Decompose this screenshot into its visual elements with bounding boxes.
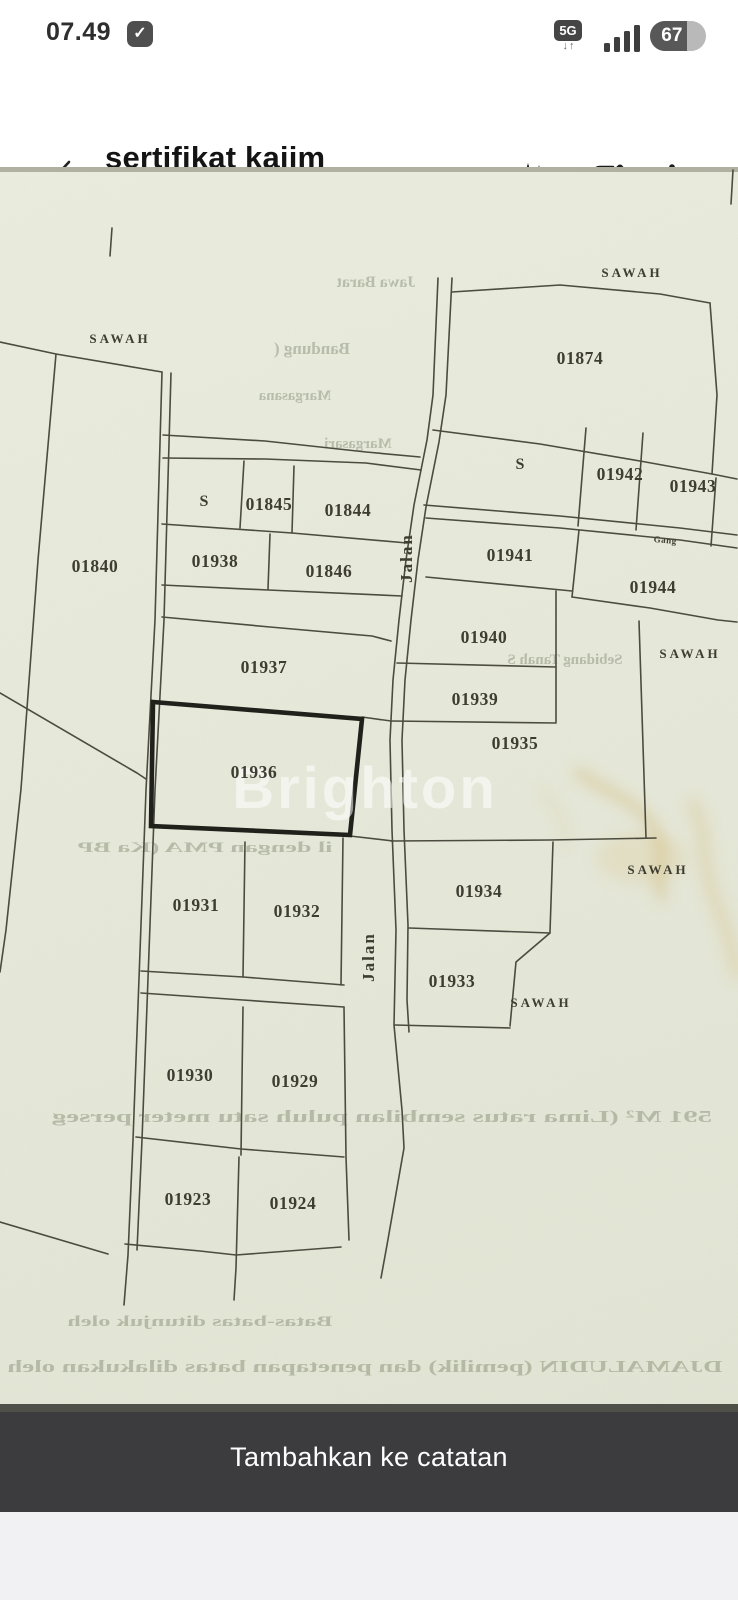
phone-screen: 07.49 ✓ 5G ↓↑ 67 sertifikat kajim Pembac… [0, 0, 738, 1600]
land-label-sawah: SAWAH [89, 331, 150, 346]
bleed-text: Bandung ( [274, 339, 350, 358]
parcel-label-01941: 01941 [487, 545, 534, 565]
parcel-label-01840: 01840 [72, 556, 119, 576]
parcel-label-s: S [516, 456, 525, 473]
parcel-label-01930: 01930 [167, 1065, 214, 1085]
parcel-label-01874: 01874 [557, 348, 604, 368]
parcel-label-01938: 01938 [192, 551, 239, 571]
cadastral-map: Jawa BaratBandung (MargasanaMargasariSeb… [0, 167, 738, 1412]
signal-strength-icon [604, 25, 644, 52]
parcel-label-01844: 01844 [325, 500, 372, 520]
app-header: sertifikat kajim Pembaca PDF [0, 60, 738, 167]
parcel-label-01937: 01937 [241, 657, 288, 677]
photo-bottom-edge [0, 1404, 738, 1412]
parcel-label-01931: 01931 [173, 895, 220, 915]
parcel-label-01940: 01940 [461, 627, 508, 647]
android-nav-bar [0, 1512, 738, 1600]
road-label-jalan: Jalan [397, 533, 416, 583]
parcel-label-01939: 01939 [452, 689, 499, 709]
bleed-text: Batas-batas ditunjuk oleh [66, 1314, 332, 1330]
add-to-notes-label: Tambahkan ke catatan [0, 1442, 738, 1473]
parcel-label-01923: 01923 [165, 1189, 212, 1209]
parcel-label-01933: 01933 [429, 971, 476, 991]
land-label-sawah: SAWAH [627, 862, 688, 877]
bleed-text: Margasana [258, 388, 331, 404]
land-label-sawah: SAWAH [659, 646, 720, 661]
alley-label-gang: Gang [653, 534, 677, 546]
parcel-label-01935: 01935 [492, 733, 539, 753]
parcel-label-01846: 01846 [306, 561, 353, 581]
add-to-notes-button[interactable]: Tambahkan ke catatan [0, 1412, 738, 1512]
parcel-label-01934: 01934 [456, 881, 503, 901]
parcel-label-01932: 01932 [274, 901, 321, 921]
parcel-label-s: S [200, 493, 209, 510]
land-label-sawah: SAWAH [510, 995, 571, 1010]
network-5g-icon: 5G [554, 20, 582, 41]
bleed-text: DJAMALUDIN (pemilik) dan penetapan batas… [7, 1357, 723, 1376]
bleed-text: il dengan PMA (Ka BP [77, 840, 332, 856]
bleed-text: Jawa Barat [336, 274, 415, 291]
road-label-jalan: Jalan [359, 932, 378, 982]
land-label-sawah: SAWAH [601, 265, 662, 280]
bleed-text: Margasari [324, 436, 391, 452]
parcel-label-01929: 01929 [272, 1071, 319, 1091]
parcel-label-01942: 01942 [597, 464, 644, 484]
clock: 07.49 [46, 18, 111, 47]
parcel-label-01924: 01924 [270, 1193, 317, 1213]
parcel-label-01845: 01845 [246, 494, 293, 514]
data-updown-arrows-icon: ↓↑ [554, 40, 584, 52]
parcel-label-01936: 01936 [231, 762, 278, 782]
photo-top-edge [0, 167, 738, 172]
parcel-label-01943: 01943 [670, 476, 717, 496]
bleed-text: 591 M² (Lima ratus sembilan puluh satu m… [51, 1107, 712, 1126]
notification-check-icon: ✓ [127, 21, 153, 47]
battery-percent: 67 [650, 21, 694, 51]
battery-icon: 67 [650, 21, 706, 51]
parcel-label-01944: 01944 [630, 577, 677, 597]
status-bar: 07.49 ✓ 5G ↓↑ 67 [0, 0, 738, 60]
pdf-page-cadastral-map[interactable]: Jawa BaratBandung (MargasanaMargasariSeb… [0, 167, 738, 1412]
